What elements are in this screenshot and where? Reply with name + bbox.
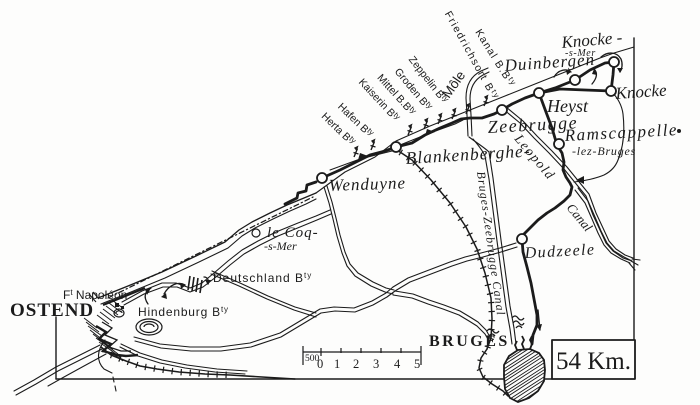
svg-text:-s-Mer: -s-Mer [264,239,297,253]
svg-text:-lez-Bruges: -lez-Bruges [572,144,636,158]
svg-text:2: 2 [353,357,359,371]
svg-text:Wenduyne: Wenduyne [328,173,406,195]
svg-text:BRUGES: BRUGES [429,333,510,350]
svg-text:0: 0 [317,357,323,371]
svg-text:Knocke: Knocke [614,80,668,103]
svg-text:1: 1 [334,357,340,371]
svg-text:3: 3 [373,357,379,371]
svg-text:-s-Mer: -s-Mer [565,48,596,59]
svg-text:Deutschland Bty: Deutschland Bty [213,271,312,285]
svg-text:OSTEND: OSTEND [10,300,94,321]
svg-text:Hindenburg Bty: Hindenburg Bty [138,305,229,319]
svg-text:Ft Napoléon: Ft Napoléon [63,288,127,302]
svg-text:5: 5 [414,357,420,371]
svg-text:4: 4 [394,357,401,371]
svg-text:54 Km.: 54 Km. [556,348,631,375]
